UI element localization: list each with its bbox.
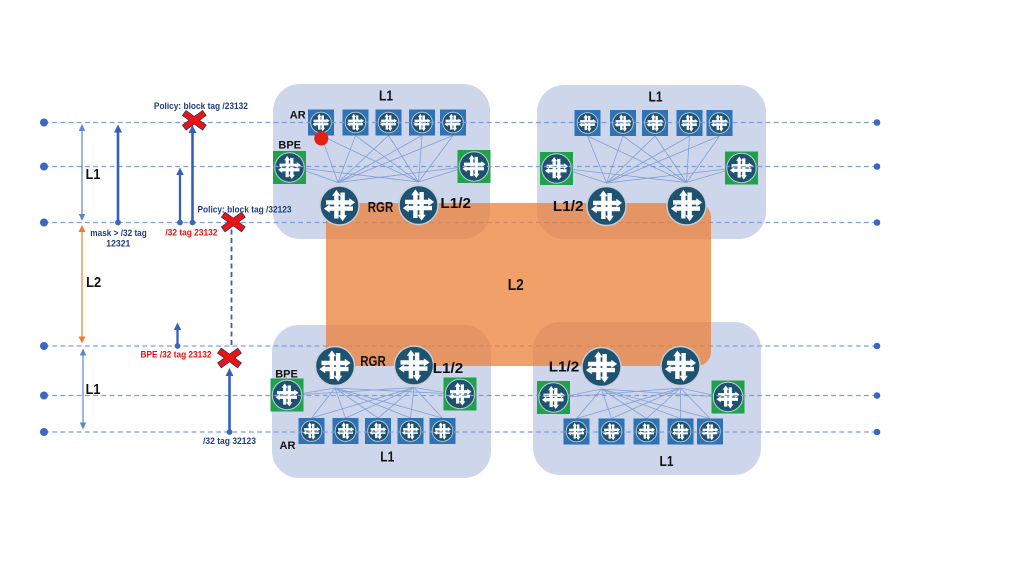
svg-text:L1/2: L1/2	[433, 360, 464, 377]
svg-text:L1/2: L1/2	[440, 195, 471, 212]
svg-text:Policy: block tag /23132: Policy: block tag /23132	[154, 101, 248, 112]
svg-text:/32 tag 32123: /32 tag 32123	[203, 436, 256, 447]
svg-text:L1: L1	[379, 88, 393, 105]
svg-text:12321: 12321	[106, 239, 131, 250]
svg-text:BPE /32 tag 23132: BPE /32 tag 23132	[141, 350, 212, 361]
svg-text:L1: L1	[660, 453, 674, 470]
svg-text:RGR: RGR	[360, 353, 386, 370]
svg-text:L2: L2	[86, 274, 101, 291]
svg-text:AR: AR	[290, 109, 306, 121]
svg-text:Policy: block tag /32123: Policy: block tag /32123	[198, 205, 292, 216]
svg-text:mask > /32 tag: mask > /32 tag	[90, 228, 147, 239]
svg-text:L1: L1	[86, 381, 101, 398]
svg-text:BPE: BPE	[278, 140, 301, 152]
svg-text:RGR: RGR	[368, 199, 394, 216]
svg-text:L1: L1	[380, 449, 394, 466]
svg-text:L1: L1	[649, 89, 663, 106]
svg-text:/32 tag 23132: /32 tag 23132	[165, 228, 217, 239]
svg-text:L1/2: L1/2	[553, 198, 584, 215]
svg-text:L1/2: L1/2	[549, 359, 580, 376]
svg-text:L1: L1	[86, 166, 101, 183]
svg-text:L2: L2	[508, 277, 524, 294]
svg-text:AR: AR	[280, 440, 296, 452]
svg-text:BPE: BPE	[275, 369, 298, 381]
